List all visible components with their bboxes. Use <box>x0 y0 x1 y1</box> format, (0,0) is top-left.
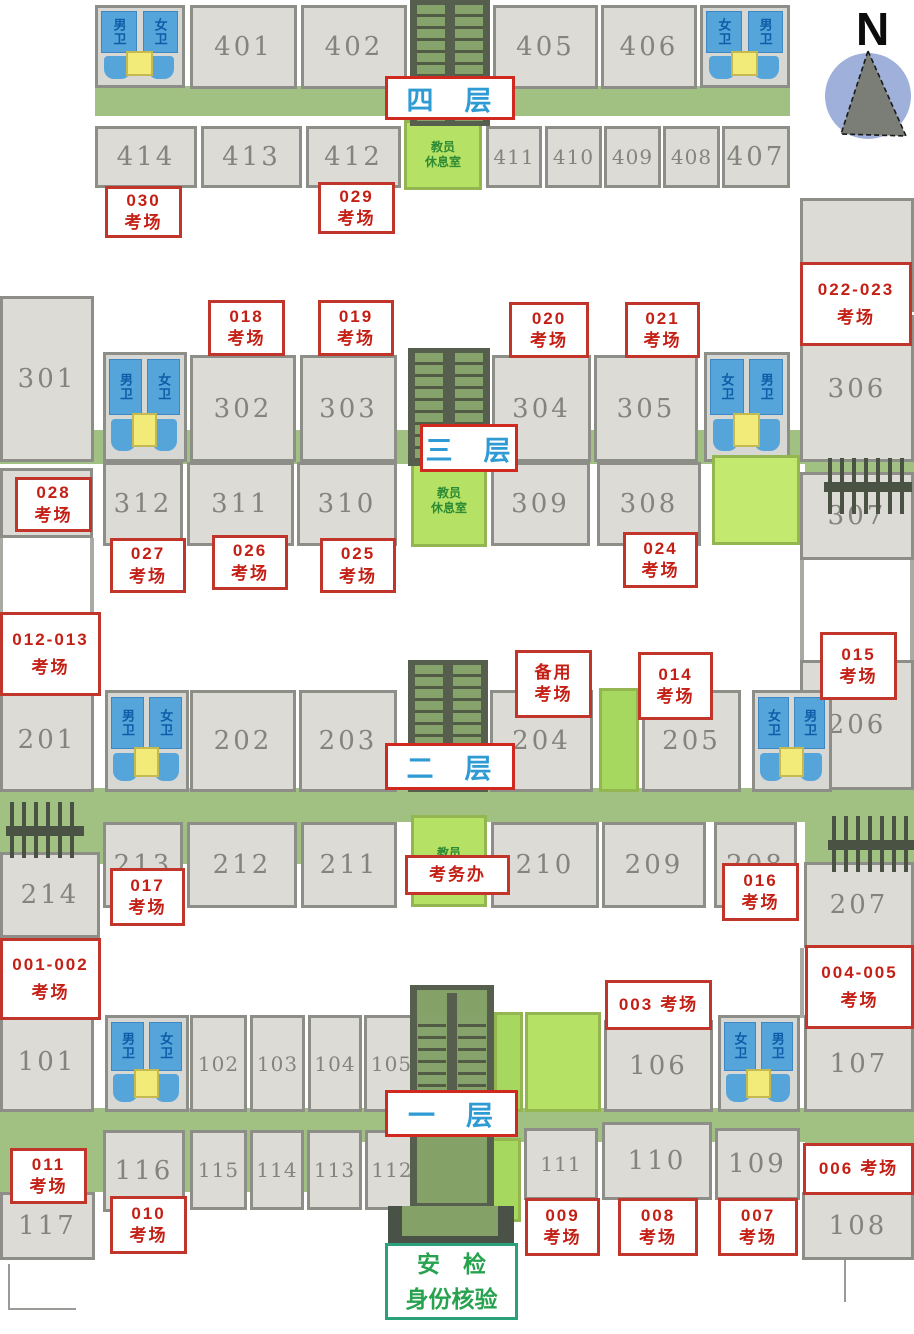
room-201: 201 <box>0 688 94 792</box>
toilet-block: 男卫 女卫 <box>105 690 189 792</box>
toilet-female: 女卫 <box>710 359 744 415</box>
callout-word: 考场 <box>840 666 878 688</box>
room-407: 407 <box>722 126 790 188</box>
room-number: 214 <box>21 880 80 910</box>
callout-004-005: 004-005考场 <box>805 945 914 1029</box>
toilet-male: 男卫 <box>111 697 144 749</box>
callout-number: 019 <box>339 306 373 328</box>
room-214: 214 <box>0 852 100 938</box>
room-411: 411 <box>486 126 542 188</box>
room-310: 310 <box>297 462 397 546</box>
callout-word: 考场 <box>530 330 568 352</box>
toilet-female: 女卫 <box>724 1022 756 1071</box>
elevator <box>126 51 154 76</box>
room-207: 207 <box>804 862 914 948</box>
room-number: 401 <box>214 32 273 62</box>
room-211: 211 <box>301 822 397 908</box>
toilet-block: 男卫 女卫 <box>95 5 185 88</box>
callout-001-002: 001-002考场 <box>0 938 101 1020</box>
callout-012-013: 012-013考场 <box>0 612 101 696</box>
floor-label-text: 三 层 <box>426 429 513 468</box>
room-number: 411 <box>493 145 534 169</box>
toilet-label: 女卫 <box>154 373 173 401</box>
room-301: 301 <box>0 296 94 462</box>
room-number: 302 <box>214 394 273 424</box>
security-line2: 身份核验 <box>406 1282 498 1317</box>
callout-word: 考场 <box>32 982 70 1004</box>
toilet-male: 男卫 <box>111 1022 144 1071</box>
callout-number: 028 <box>36 482 70 504</box>
room-number: 206 <box>828 710 887 740</box>
toilet-block: 男卫 女卫 <box>105 1015 189 1112</box>
callout-word: 考场 <box>535 684 573 706</box>
toilet-male: 男卫 <box>748 11 783 53</box>
callout-016: 016考场 <box>722 863 799 921</box>
callout-number: 024 <box>643 538 677 560</box>
callout-029: 029考场 <box>318 182 395 234</box>
elevator <box>733 413 759 446</box>
teacher-lounge-label: 教员 休息室 <box>425 140 461 170</box>
stairs-icon <box>828 458 908 514</box>
room-101: 101 <box>0 1012 94 1112</box>
callout-word: 考场 <box>639 1227 677 1249</box>
callout-word: 考场 <box>644 330 682 352</box>
room-number: 205 <box>662 726 721 756</box>
callout-030: 030考场 <box>105 186 182 238</box>
toilet-block: 女卫 男卫 <box>700 5 790 88</box>
callout-number: 029 <box>339 186 373 208</box>
callout-025: 025考场 <box>320 538 396 593</box>
callout-word: 考场 <box>125 212 163 234</box>
room-number: 201 <box>18 725 77 755</box>
callout-backup: 备用考场 <box>515 650 592 718</box>
room-115: 115 <box>190 1130 247 1210</box>
callout-019: 019考场 <box>318 300 394 356</box>
callout-number: 006 <box>819 1158 853 1180</box>
callout-014: 014考场 <box>638 652 713 720</box>
callout-number: 007 <box>741 1205 775 1227</box>
toilet-label: 女卫 <box>730 1032 749 1060</box>
toilet-block: 女卫 男卫 <box>704 352 790 462</box>
callout-024: 024考场 <box>623 532 698 588</box>
room-number: 304 <box>512 394 571 424</box>
callout-word: 考场 <box>228 328 266 350</box>
callout-number: 011 <box>32 1154 65 1176</box>
room-number: 410 <box>553 145 594 169</box>
callout-word: 考场 <box>338 208 376 230</box>
room-number: 406 <box>620 32 679 62</box>
room-number: 210 <box>516 850 575 880</box>
room-302: 302 <box>190 355 296 462</box>
toilet-female: 女卫 <box>143 11 178 53</box>
room-number: 211 <box>320 850 379 880</box>
elevator <box>746 1069 771 1098</box>
toilet-label: 女卫 <box>717 373 736 401</box>
security-line1: 安 检 <box>417 1247 486 1282</box>
callout-020: 020考场 <box>509 302 589 358</box>
callout-number: 017 <box>130 875 164 897</box>
room-number: 111 <box>540 1152 581 1176</box>
callout-word: 考场 <box>544 1227 582 1249</box>
floor-label-text: 一 层 <box>408 1094 495 1133</box>
room-305: 305 <box>594 355 698 462</box>
wall-segment <box>800 558 804 662</box>
green-room <box>712 455 800 545</box>
toilet-label: 男卫 <box>768 1032 787 1060</box>
toilet-label: 男卫 <box>757 373 776 401</box>
callout-number: 014 <box>658 664 692 686</box>
room-number: 207 <box>830 890 889 920</box>
callout-006: 006考场 <box>803 1143 914 1195</box>
building-outline-corner <box>8 1264 76 1310</box>
callout-021: 021考场 <box>625 302 700 358</box>
callout-number: 021 <box>645 308 679 330</box>
toilet-label: 女卫 <box>156 709 175 737</box>
callout-word: 考场 <box>130 1225 168 1247</box>
room-401: 401 <box>190 5 297 89</box>
compass-rose-icon <box>820 48 914 144</box>
room-number: 114 <box>256 1158 297 1182</box>
floor-label-text: 二 层 <box>407 747 494 786</box>
room-203: 203 <box>299 690 397 792</box>
room-number: 204 <box>512 726 571 756</box>
toilet-label: 女卫 <box>764 709 783 737</box>
callout-number: 025 <box>341 543 375 565</box>
room-number: 101 <box>18 1047 77 1077</box>
room-number: 301 <box>18 364 77 394</box>
stairs-icon <box>832 816 910 872</box>
toilet-female: 女卫 <box>149 1022 182 1071</box>
toilet-female: 女卫 <box>149 697 182 749</box>
wall-segment <box>800 948 804 1018</box>
green-room <box>525 1012 601 1112</box>
callout-011: 011考场 <box>10 1148 87 1204</box>
teacher-lounge-label: 教员 休息室 <box>431 486 467 516</box>
callout-word: 考场 <box>742 892 780 914</box>
toilet-label: 男卫 <box>800 709 819 737</box>
callout-number: 020 <box>532 308 566 330</box>
elevator <box>779 747 803 778</box>
callout-018: 018考场 <box>208 300 285 356</box>
callout-word: 考场 <box>837 307 875 329</box>
callout-word: 考场 <box>657 686 695 708</box>
callout-word: 考场 <box>860 1158 898 1180</box>
room-number: 407 <box>727 142 786 172</box>
callout-number: 008 <box>641 1205 675 1227</box>
green-room <box>599 688 639 792</box>
callout-number: 003 <box>619 994 653 1016</box>
room-102: 102 <box>190 1015 247 1112</box>
callout-010: 010考场 <box>110 1196 187 1254</box>
room-number: 414 <box>117 142 176 172</box>
room-309: 309 <box>491 462 590 546</box>
room-number: 408 <box>671 145 712 169</box>
toilet-label: 女卫 <box>151 18 170 46</box>
room-number: 306 <box>828 374 887 404</box>
room-104: 104 <box>308 1015 362 1112</box>
elevator <box>132 413 158 446</box>
room-number: 402 <box>325 32 384 62</box>
callout-017: 017考场 <box>110 868 185 926</box>
room-number: 106 <box>629 1051 688 1081</box>
callout-word: 考场 <box>35 505 73 527</box>
room-number: 311 <box>211 489 270 519</box>
room-409: 409 <box>604 126 661 188</box>
room-107: 107 <box>804 1015 914 1112</box>
callout-007: 007考场 <box>718 1198 798 1256</box>
room-number: 412 <box>324 142 383 172</box>
room-number: 105 <box>371 1052 412 1076</box>
room-number: 405 <box>516 32 575 62</box>
room-303: 303 <box>300 355 397 462</box>
teacher-lounge: 教员 休息室 <box>404 120 482 190</box>
toilet-female: 女卫 <box>706 11 741 53</box>
room-number: 308 <box>620 489 679 519</box>
room-number: 112 <box>371 1158 412 1182</box>
callout-027: 027考场 <box>110 538 186 593</box>
toilet-male: 男卫 <box>101 11 136 53</box>
callout-number: 030 <box>126 190 160 212</box>
callout-number: 备用 <box>535 662 573 684</box>
callout-word: 考场 <box>841 990 879 1012</box>
room-number: 212 <box>213 850 272 880</box>
callout-number: 022-023 <box>818 279 894 301</box>
callout-number: 012-013 <box>12 629 88 651</box>
toilet-female: 女卫 <box>758 697 789 749</box>
toilet-block: 女卫 男卫 <box>718 1015 800 1112</box>
toilet-label: 男卫 <box>110 18 129 46</box>
callout-number: 010 <box>131 1203 165 1225</box>
room-106: 106 <box>604 1020 713 1112</box>
floor-label-3: 三 层 <box>420 424 518 472</box>
room-109: 109 <box>715 1128 800 1200</box>
room-number: 202 <box>214 726 273 756</box>
callout-number: 001-002 <box>12 954 88 976</box>
callout-number: 018 <box>229 306 263 328</box>
room-number: 115 <box>198 1158 239 1182</box>
callout-number: 026 <box>233 540 267 562</box>
security-check-box: 安 检 身份核验 <box>385 1243 518 1320</box>
toilet-block: 女卫 男卫 <box>752 690 832 792</box>
callout-word: 考场 <box>660 994 698 1016</box>
room-number: 310 <box>318 489 377 519</box>
room-113: 113 <box>307 1130 362 1210</box>
callout-015: 015考场 <box>820 632 897 700</box>
room-number: 110 <box>628 1146 687 1176</box>
callout-009: 009考场 <box>525 1198 600 1256</box>
room-number: 116 <box>115 1156 174 1186</box>
wall-segment <box>910 558 914 662</box>
room-312: 312 <box>103 462 183 546</box>
toilet-label: 女卫 <box>156 1032 175 1060</box>
elevator <box>731 51 759 76</box>
room-410: 410 <box>545 126 602 188</box>
stairs-icon <box>10 802 80 858</box>
toilet-female: 女卫 <box>147 359 180 415</box>
toilet-label: 男卫 <box>118 1032 137 1060</box>
callout-number: 004-005 <box>821 962 897 984</box>
room-number: 104 <box>314 1052 355 1076</box>
toilet-male: 男卫 <box>794 697 825 749</box>
floor-label-4: 四 层 <box>385 76 515 120</box>
room-number: 413 <box>222 142 281 172</box>
room-406: 406 <box>601 5 697 89</box>
callout-word: 考场 <box>129 566 167 588</box>
room-number: 303 <box>319 394 378 424</box>
toilet-label: 男卫 <box>756 18 775 46</box>
floor-label-2: 二 层 <box>385 743 515 790</box>
callout-word: 考场 <box>32 657 70 679</box>
room-number: 209 <box>625 850 684 880</box>
callout-number: 015 <box>841 644 875 666</box>
room-number: 409 <box>612 145 653 169</box>
room-number: 117 <box>18 1211 77 1241</box>
callout-word: 考场 <box>337 328 375 350</box>
room-103: 103 <box>250 1015 305 1112</box>
toilet-block: 男卫 女卫 <box>103 352 187 462</box>
room-209: 209 <box>602 822 706 908</box>
room-413: 413 <box>201 126 302 188</box>
floor-label-1: 一 层 <box>385 1090 518 1137</box>
room-114: 114 <box>250 1130 304 1210</box>
room-311: 311 <box>187 462 294 546</box>
room-108: 108 <box>802 1192 914 1260</box>
toilet-label: 男卫 <box>118 709 137 737</box>
room-number: 113 <box>314 1158 355 1182</box>
callout-exam-office: 考务办 <box>405 855 510 895</box>
toilet-male: 男卫 <box>761 1022 793 1071</box>
room-number: 305 <box>617 394 676 424</box>
building-outline-corner <box>844 1256 908 1302</box>
room-111: 111 <box>524 1128 598 1200</box>
room-408: 408 <box>663 126 720 188</box>
room-number: 103 <box>257 1052 298 1076</box>
room-number: 109 <box>728 1149 787 1179</box>
room-number: 102 <box>198 1052 239 1076</box>
callout-word: 考务办 <box>429 864 486 886</box>
toilet-label: 男卫 <box>116 373 135 401</box>
room-number: 203 <box>319 726 378 756</box>
callout-008: 008考场 <box>618 1198 698 1256</box>
callout-word: 考场 <box>642 560 680 582</box>
room-number: 312 <box>114 489 173 519</box>
callout-word: 考场 <box>739 1227 777 1249</box>
callout-number: 016 <box>743 870 777 892</box>
entrance-step <box>402 1206 498 1236</box>
room-number: 107 <box>830 1049 889 1079</box>
floor-label-text: 四 层 <box>407 79 494 118</box>
floor-plan: 401 402 405 406 男卫 女卫 女卫 男卫 414 413 412 … <box>0 0 914 1334</box>
callout-026: 026考场 <box>212 535 288 590</box>
callout-word: 考场 <box>339 566 377 588</box>
callout-028: 028考场 <box>15 477 92 532</box>
callout-number: 027 <box>131 543 165 565</box>
callout-number: 009 <box>545 1205 579 1227</box>
room-110: 110 <box>602 1122 712 1200</box>
toilet-male: 男卫 <box>109 359 142 415</box>
callout-word: 考场 <box>231 563 269 585</box>
callout-022-023: 022-023考场 <box>800 262 912 346</box>
room-212: 212 <box>187 822 297 908</box>
elevator <box>134 747 160 778</box>
room-number: 309 <box>511 489 570 519</box>
room-202: 202 <box>190 690 296 792</box>
elevator <box>134 1069 160 1098</box>
callout-003: 003考场 <box>605 980 712 1030</box>
room-414: 414 <box>95 126 197 188</box>
toilet-male: 男卫 <box>749 359 783 415</box>
room-412: 412 <box>306 126 401 188</box>
toilet-label: 女卫 <box>715 18 734 46</box>
room-number: 108 <box>829 1211 888 1241</box>
callout-word: 考场 <box>30 1176 68 1198</box>
callout-word: 考场 <box>129 897 167 919</box>
